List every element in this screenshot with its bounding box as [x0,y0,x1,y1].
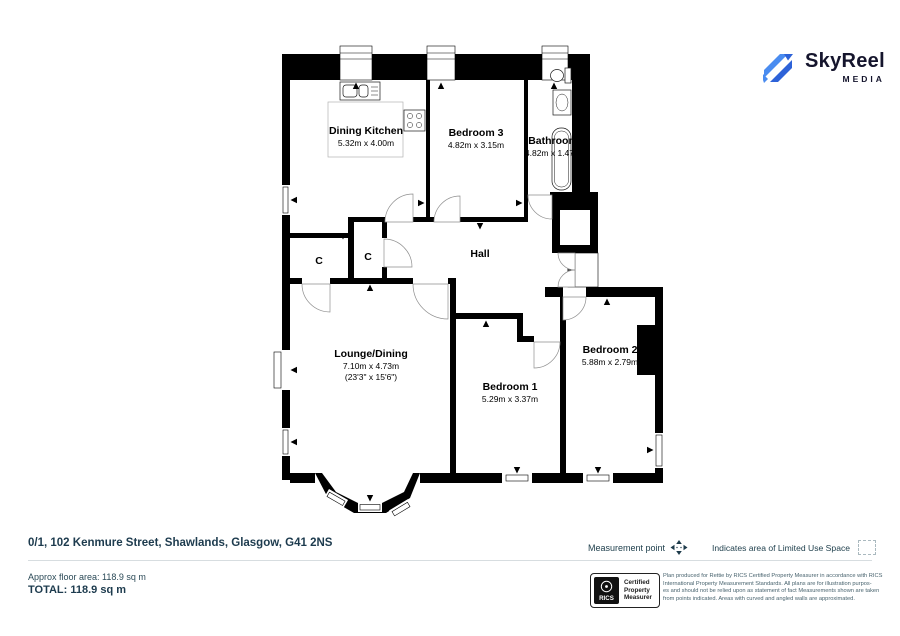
disclaimer-line: International Property Measurement Stand… [663,581,882,589]
rics-badge: RICS Certified Property Measurer [590,573,660,608]
measurement-point-icon [477,223,483,230]
logo-brand-text: SkyReel [805,50,885,72]
disclaimer-line: from points indicated. Areas with curved… [663,596,882,604]
room-label-cupboard-left: C [315,255,323,267]
skyreel-logo: SkyReel MEDIA [760,50,885,86]
room-label-bedroom-3: Bedroom 3 [449,127,504,139]
window-icon [583,473,613,483]
door-arc-icon [558,270,575,287]
logo-sub-text: MEDIA [843,74,885,84]
measurement-point-icon [551,83,557,90]
measurement-point-icon [367,495,373,502]
skyreel-logo-text: SkyReel MEDIA [805,50,885,84]
rics-logo-icon: RICS [594,577,619,604]
measurement-point-icon [516,200,523,206]
door-arc-icon [302,284,330,312]
window-icon [655,433,663,468]
door-arc-icon [563,297,586,320]
basin-icon [553,90,571,115]
room-dims-dining-kitchen: 5.32m x 4.00m [338,138,394,148]
rics-cert-line: Measurer [624,594,652,602]
door-arc-icon [528,195,552,219]
window-icon [427,46,455,80]
floor-plan: Dining Kitchen 5.32m x 4.00m Bedroom 3 4… [270,40,670,530]
room-label-bedroom-1: Bedroom 1 [483,381,538,393]
measurement-point-icon [483,321,489,328]
room-dims-bathroom: 4.82m x 1.47m [525,148,581,158]
measurement-point-icon [291,439,298,445]
approx-floor-area: Approx floor area: 118.9 sq m [28,572,146,582]
toilet-icon [551,68,572,83]
compass-arrows-icon [670,540,688,556]
skyreel-logo-icon [760,50,796,86]
room-label-cupboard-right: C [364,251,372,263]
room-label-bathroom: Bathroom [528,135,578,147]
measurement-point-icon [604,299,610,306]
room-dims-imperial-lounge-dining: (23'3" x 15'6") [345,372,397,382]
room-dims-bedroom-1: 5.29m x 3.37m [482,394,538,404]
property-address: 0/1, 102 Kenmure Street, Shawlands, Glas… [28,537,332,549]
rics-cert-line: Property [624,587,652,595]
legend-limited-use: Indicates area of Limited Use Space [712,540,876,555]
kitchen-sink-icon [340,82,380,100]
divider-line [28,560,872,561]
legend-measurement-point: Measurement point [588,540,688,556]
total-floor-area: TOTAL: 118.9 sq m [28,584,126,596]
window-icon [282,185,290,215]
window-icon [502,473,532,483]
floorplan-page: SkyReel MEDIA [0,0,900,636]
measurement-point-icon [595,467,601,474]
measurement-point-icon [418,200,425,206]
door-arc-icon [558,253,575,270]
door-arc-icon [413,284,448,319]
measurement-point-label: Measurement point [588,543,665,553]
room-label-bedroom-2: Bedroom 2 [583,344,638,356]
measurement-point-icon [514,467,520,474]
rics-brand-text: RICS [599,595,614,602]
limited-use-label: Indicates area of Limited Use Space [712,543,850,553]
window-icon [340,46,372,80]
room-label-dining-kitchen: Dining Kitchen [329,125,403,137]
door-arc-icon [434,196,460,222]
disclaimer-line: es and should not be relied upon as stat… [663,588,882,596]
measurement-point-icon [367,285,373,292]
stove-icon [404,110,425,131]
room-label-lounge-dining: Lounge/Dining [334,348,408,360]
measurement-point-icon [291,197,298,203]
door-arc-icon [384,239,412,267]
measurement-point-icon [438,83,444,90]
limited-use-area-icon [858,540,876,555]
plan-walls [282,54,663,513]
rics-cert-text: Certified Property Measurer [624,579,652,602]
room-dims-bedroom-3: 4.82m x 3.15m [448,140,504,150]
room-label-hall: Hall [470,248,489,260]
room-dims-bedroom-2: 5.88m x 2.79m [582,357,638,367]
disclaimer-text: Plan produced for Rettie by RICS Certifi… [663,573,882,604]
rics-cert-line: Certified [624,579,652,587]
door-arc-icon [534,342,560,368]
window-icon [273,350,290,390]
measurement-point-icon [647,447,654,453]
disclaimer-line: Plan produced for Rettie by RICS Certifi… [663,573,882,581]
window-icon [282,428,290,456]
measurement-point-icon [291,367,298,373]
door-arc-icon [385,194,413,222]
room-dims-lounge-dining: 7.10m x 4.73m [343,361,399,371]
